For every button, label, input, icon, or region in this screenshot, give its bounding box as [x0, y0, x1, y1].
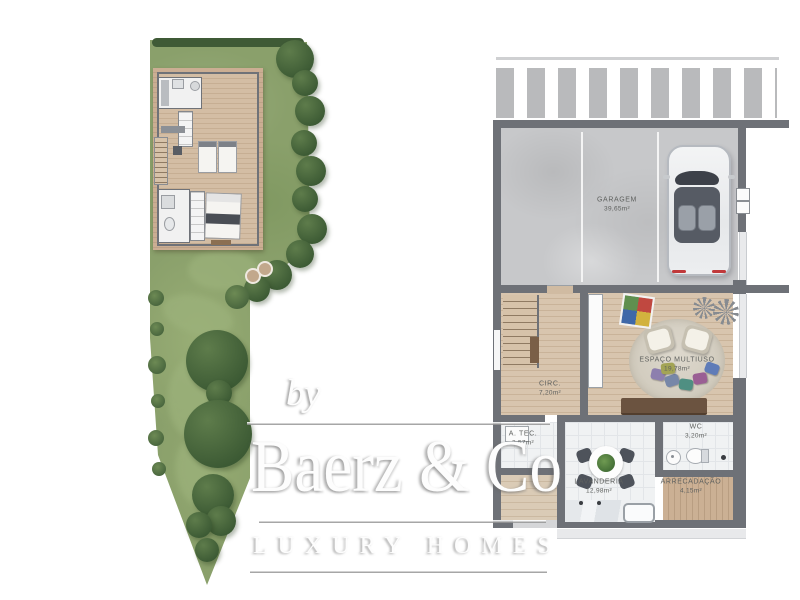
car-mirror	[728, 175, 735, 179]
parking-bay-line	[581, 132, 583, 282]
room-label-garagem: GARAGEM 39,65m²	[597, 197, 637, 214]
play-mat	[619, 293, 655, 329]
bush	[152, 462, 166, 476]
room-name: GARAGEM	[597, 197, 637, 206]
tree	[195, 538, 219, 562]
bush	[151, 394, 165, 408]
wall-top	[493, 120, 789, 128]
faucet	[597, 501, 601, 505]
kitchen-counter	[161, 80, 169, 106]
sink	[173, 80, 183, 88]
wall-garage-right	[738, 128, 746, 232]
room-label-circ: CIRC. 7,20m²	[539, 381, 561, 398]
wardrobe	[191, 192, 204, 240]
toilet-tank	[701, 449, 709, 463]
tree	[295, 96, 325, 126]
desk-chair	[173, 146, 182, 155]
tree	[184, 400, 252, 468]
watermark-divider	[259, 520, 546, 523]
tree	[291, 130, 317, 156]
bush	[148, 430, 164, 446]
car-mirror	[663, 175, 670, 179]
tree	[292, 70, 318, 96]
room-name: LAVANDERIA	[574, 479, 623, 488]
cabinet	[161, 126, 185, 133]
bush	[225, 285, 249, 309]
terrace-edge	[557, 528, 746, 539]
room-area: 4,15m²	[661, 487, 722, 495]
washbasin	[666, 450, 681, 465]
stairs	[155, 138, 167, 184]
bush	[148, 356, 166, 374]
electrical-panel	[736, 201, 750, 214]
sideboard	[621, 398, 707, 415]
toilet	[165, 218, 174, 230]
wall-garage-living	[493, 285, 789, 293]
wall-right-bottom	[733, 390, 746, 528]
tree	[296, 156, 326, 186]
laundry-sink	[623, 503, 655, 523]
wall-lower-left	[493, 415, 545, 422]
plant	[713, 299, 739, 325]
master-bed	[205, 193, 241, 238]
pergola-slats	[496, 68, 777, 118]
electrical-panel	[736, 188, 750, 201]
room-label-wc: WC 3,20m²	[685, 424, 707, 441]
shower	[191, 82, 199, 90]
floor-drain	[721, 455, 726, 460]
faucet	[579, 501, 583, 505]
house-upper-floor-plan	[153, 68, 263, 250]
car-top-view	[667, 145, 731, 276]
sliding-door-panel	[588, 294, 603, 388]
room-area: 39,65m²	[597, 205, 637, 213]
watermark-brand: Baerz & Co	[251, 430, 562, 504]
wall-lower	[557, 415, 746, 422]
car-windshield	[675, 171, 719, 185]
wall-laundry-wc	[655, 415, 663, 470]
window	[739, 294, 747, 378]
table-plant	[597, 454, 615, 472]
tree	[292, 186, 318, 212]
watermark-divider	[247, 422, 550, 425]
room-name: CIRC.	[539, 381, 561, 390]
watermark-tagline: LUXURY HOMES	[253, 533, 561, 560]
ottoman	[257, 261, 273, 277]
window	[494, 330, 500, 370]
room-area: 19,78m²	[639, 365, 714, 373]
bush	[150, 322, 164, 336]
plant	[693, 297, 715, 319]
stair-cabinet	[530, 337, 539, 363]
pergola-beam	[496, 57, 779, 60]
bush	[148, 290, 164, 306]
room-label-espaco-multiuso: ESPAÇO MULTIUSO 19,78m²	[639, 357, 714, 374]
car-cabin	[674, 187, 720, 243]
parking-bay-line	[657, 132, 659, 282]
wall-wc-storage	[655, 470, 746, 477]
room-area: 12,98m²	[574, 487, 623, 495]
wall-circ-multiuso	[580, 287, 588, 421]
pillow	[678, 378, 693, 391]
room-area: 7,20m²	[539, 389, 561, 397]
room-name: WC	[685, 424, 707, 433]
twin-bed	[219, 142, 236, 172]
room-label-lavanderia: LAVANDERIA 12,98m²	[574, 479, 623, 496]
room-label-arrecadacao: ARRECADAÇÃO 4,15m²	[661, 479, 722, 496]
door-opening	[547, 285, 573, 294]
watermark-by: by	[286, 372, 321, 415]
room-name: ARRECADAÇÃO	[661, 479, 722, 488]
car-taillight	[712, 270, 726, 273]
twin-bed	[199, 142, 216, 172]
floorplan-page: GARAGEM 39,65m² CIRC. 7,20m² ESPAÇO MULT…	[0, 0, 800, 600]
bench	[211, 240, 231, 245]
room-name: ESPAÇO MULTIUSO	[639, 357, 714, 366]
watermark-divider	[250, 570, 547, 573]
wall-block	[733, 378, 746, 390]
car-taillight	[672, 270, 686, 273]
room-area: 3,20m²	[685, 432, 707, 440]
tree	[286, 240, 314, 268]
shower	[162, 196, 174, 208]
tree	[186, 512, 212, 538]
